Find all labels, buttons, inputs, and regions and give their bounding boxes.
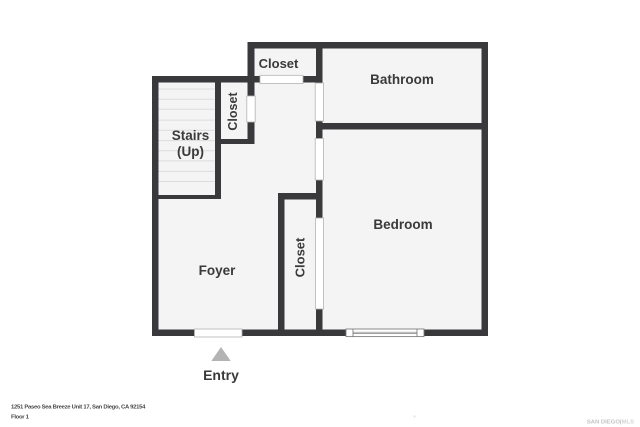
svg-text:Stairs: Stairs [172, 128, 210, 143]
svg-text:Closet: Closet [293, 237, 308, 277]
svg-text:Closet: Closet [226, 92, 240, 131]
svg-text:Closet: Closet [259, 56, 299, 71]
svg-text:Bedroom: Bedroom [373, 217, 432, 232]
svg-text:Floor 1: Floor 1 [11, 415, 30, 421]
svg-text:Bathroom: Bathroom [370, 72, 434, 87]
svg-text:1251 Paseo Sea Breeze Unit 17,: 1251 Paseo Sea Breeze Unit 17, San Diego… [11, 404, 146, 410]
svg-text:SAN DIEGO|MLS: SAN DIEGO|MLS [587, 420, 634, 426]
svg-text:Foyer: Foyer [199, 263, 237, 278]
svg-text:Entry: Entry [203, 367, 239, 383]
svg-text:(Up): (Up) [177, 144, 204, 159]
